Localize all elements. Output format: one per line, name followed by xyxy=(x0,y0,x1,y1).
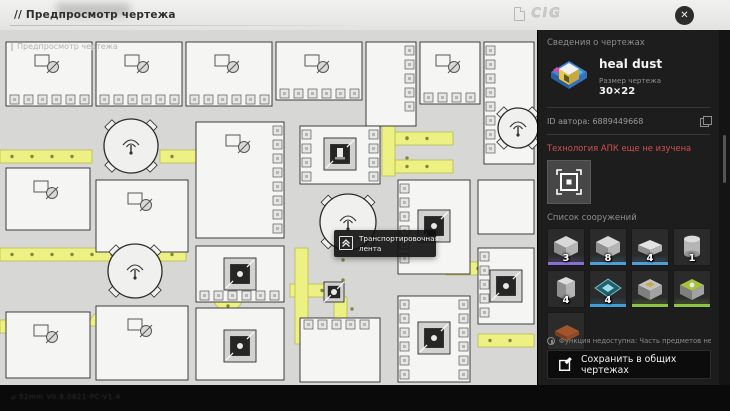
footer-note: Функция недоступна: Часть предметов неиз… xyxy=(559,337,711,345)
blueprint-drawing[interactable] xyxy=(0,30,538,385)
blueprint-meta: heal dust Размер чертежа 30×22 xyxy=(599,55,662,97)
blueprint-preview-screen: // Предпросмотр чертежа CiG ✕ ‖Предпросм… xyxy=(0,0,730,411)
rarity-bar xyxy=(674,304,710,307)
page-title: // Предпросмотр чертежа xyxy=(14,9,176,21)
bottom-bar: ⊿ 52mm V0.8.0821-PC-V1.4 xyxy=(0,385,730,411)
structure-count: 4 xyxy=(590,295,626,306)
panel-title: Сведения о чертежах xyxy=(547,38,710,48)
structure-count: 4 xyxy=(548,295,584,306)
blueprint-size-value: 30×22 xyxy=(599,86,662,97)
structure-icon xyxy=(635,275,665,303)
tooltip-label: Транспортировочная лента xyxy=(359,234,430,253)
info-icon xyxy=(547,337,555,345)
structures-grid: 384144 xyxy=(547,228,710,350)
structure-tile-7[interactable] xyxy=(631,270,669,308)
author-id-row: ID автора: 6889449668 xyxy=(547,116,710,126)
version-watermark: ⊿ 52mm V0.8.0821-PC-V1.4 xyxy=(10,393,121,401)
conveyor-icon xyxy=(339,236,353,250)
brand-logo: CiG xyxy=(530,6,563,21)
save-to-shared-button[interactable]: Сохранить в общих чертежах xyxy=(547,350,711,379)
blueprint-size-label: Размер чертежа xyxy=(599,76,662,85)
note-row: Функция недоступна: Часть предметов неиз… xyxy=(547,337,711,345)
structure-tile-2[interactable]: 8 xyxy=(589,228,627,266)
panel-footer: Функция недоступна: Часть предметов неиз… xyxy=(547,337,711,379)
blueprint-name: heal dust xyxy=(599,57,662,71)
blueprint-info-panel: Сведения о чертежах heal dust Размер чер… xyxy=(537,30,719,385)
blueprint-thumbnail-icon xyxy=(547,55,591,99)
structure-tile-3[interactable]: 4 xyxy=(631,228,669,266)
author-id: ID автора: 6889449668 xyxy=(547,117,643,126)
divider xyxy=(547,107,710,108)
divider xyxy=(547,134,710,135)
structures-list-title: Список сооружений xyxy=(547,213,710,223)
tech-warning: Технология АПК еще не изучена xyxy=(547,143,710,153)
structure-count: 8 xyxy=(590,253,626,264)
structure-tile-1[interactable]: 3 xyxy=(547,228,585,266)
apc-machine-icon xyxy=(554,167,584,197)
structure-count: 4 xyxy=(632,253,668,264)
canvas-watermark: ‖Предпросмотр чертежа xyxy=(10,42,118,51)
topbar-icons: CiG xyxy=(514,6,562,21)
blueprint-canvas[interactable]: ‖Предпросмотр чертежа Транспортировочная… xyxy=(0,30,538,385)
right-scroll-strip xyxy=(719,30,730,385)
structure-tile-5[interactable]: 4 xyxy=(547,270,585,308)
structure-count: 3 xyxy=(548,253,584,264)
rarity-bar xyxy=(632,304,668,307)
save-blueprint-icon xyxy=(558,356,573,373)
scrollbar-thumb[interactable] xyxy=(723,135,726,183)
top-bar: // Предпросмотр чертежа CiG ✕ xyxy=(0,0,730,30)
watermark-tick-icon: ‖ xyxy=(10,42,14,51)
structure-icon xyxy=(677,275,707,303)
structure-tile-4[interactable]: 1 xyxy=(673,228,711,266)
apc-structure-slot[interactable] xyxy=(547,160,591,204)
blueprint-card: heal dust Размер чертежа 30×22 xyxy=(547,55,710,99)
save-button-label: Сохранить в общих чертежах xyxy=(581,354,710,376)
structure-tile-8[interactable] xyxy=(673,270,711,308)
structure-tile-6[interactable]: 4 xyxy=(589,270,627,308)
copy-icon[interactable] xyxy=(700,116,710,126)
conveyor-tooltip: Транспортировочная лента xyxy=(334,230,436,257)
document-icon xyxy=(514,7,525,21)
structure-count: 1 xyxy=(674,253,710,264)
close-button[interactable]: ✕ xyxy=(675,6,694,25)
title-underline xyxy=(10,25,370,26)
